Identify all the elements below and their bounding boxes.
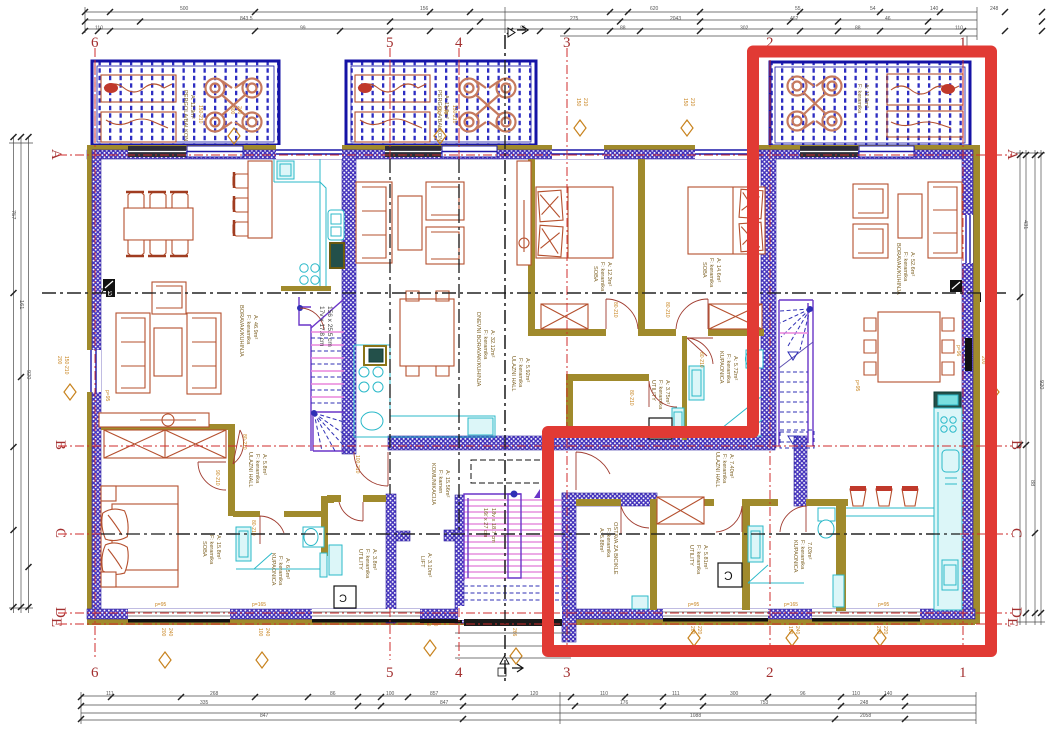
svg-text:UTILITY: UTILITY: [688, 545, 694, 566]
svg-text:200: 200: [160, 628, 166, 637]
svg-text:200: 200: [875, 626, 881, 635]
svg-text:300: 300: [730, 691, 739, 697]
svg-text:150-210: 150-210: [197, 105, 203, 124]
svg-text:F: keramika: F: keramika: [517, 358, 523, 388]
svg-text:PERGOLA/BALKON: PERGOLA/BALKON: [182, 90, 188, 141]
svg-text:C: C: [52, 528, 68, 538]
svg-text:110: 110: [600, 691, 608, 697]
svg-text:300: 300: [435, 106, 441, 115]
svg-text:111: 111: [106, 691, 114, 697]
svg-text:462: 462: [790, 16, 799, 22]
svg-text:F: keramika: F: keramika: [254, 454, 260, 484]
svg-text:335: 335: [200, 700, 209, 706]
svg-text:150-210: 150-210: [451, 105, 457, 124]
svg-text:F: keramika: F: keramika: [725, 354, 731, 384]
svg-text:F: keramika: F: keramika: [902, 252, 908, 282]
svg-text:200: 200: [56, 356, 62, 365]
svg-text:220: 220: [696, 626, 702, 635]
svg-text:266: 266: [511, 628, 517, 637]
svg-text:240: 240: [794, 626, 800, 635]
svg-text:A: 5.72m²: A: 5.72m²: [732, 356, 738, 380]
svg-text:KUPAONICA: KUPAONICA: [792, 540, 798, 573]
svg-text:240: 240: [264, 628, 270, 637]
svg-text:BORAVAK/KUHINJA: BORAVAK/KUHINJA: [895, 243, 901, 295]
svg-text:2058: 2058: [860, 713, 871, 719]
svg-text:220: 220: [882, 626, 888, 635]
svg-text:A: 5.92m²: A: 5.92m²: [524, 358, 530, 382]
svg-text:A: 3.75m²: A: 3.75m²: [664, 380, 670, 404]
svg-text:KUPAONICA: KUPAONICA: [270, 553, 276, 586]
svg-text:p=95: p=95: [878, 602, 889, 608]
svg-text:248: 248: [860, 700, 869, 706]
svg-text:100: 100: [386, 691, 395, 697]
svg-text:F: keramika: F: keramika: [657, 380, 663, 410]
svg-text:p=96: p=96: [955, 345, 961, 356]
svg-text:176: 176: [620, 700, 629, 706]
svg-text:4: 4: [455, 665, 463, 681]
svg-text:161: 161: [18, 300, 24, 309]
svg-text:80·210: 80·210: [612, 302, 618, 318]
svg-text:431: 431: [1022, 220, 1028, 229]
svg-text:PERGOLA/BALKON: PERGOLA/BALKON: [436, 90, 442, 141]
svg-text:2: 2: [766, 665, 774, 681]
svg-text:SOBA: SOBA: [592, 266, 598, 282]
svg-text:140: 140: [884, 691, 893, 697]
svg-text:920: 920: [1038, 380, 1044, 389]
svg-text:F: keramika: F: keramika: [856, 84, 862, 114]
svg-text:ULAZNI HALL: ULAZNI HALL: [247, 452, 253, 487]
svg-text:6: 6: [91, 665, 99, 681]
svg-text:80·210: 80·210: [698, 352, 704, 368]
svg-text:1: 1: [959, 665, 967, 681]
svg-text:KUPAONICA: KUPAONICA: [718, 351, 724, 384]
svg-text:A: 46.9m²: A: 46.9m²: [252, 315, 258, 339]
svg-text:120: 120: [530, 691, 539, 697]
svg-text:F: keramika: F: keramika: [599, 262, 605, 292]
svg-text:150: 150: [575, 98, 581, 107]
svg-text:757: 757: [10, 210, 16, 219]
svg-text:DNEVNI BORAVAK/KUHINJA: DNEVNI BORAVAK/KUHINJA: [475, 312, 481, 387]
svg-text:210: 210: [689, 98, 695, 107]
svg-text:KOMUNIKACIJA: KOMUNIKACIJA: [430, 463, 436, 505]
svg-text:88: 88: [1029, 480, 1035, 486]
svg-text:A: 7.40m²: A: 7.40m²: [728, 454, 734, 478]
svg-text:302: 302: [740, 26, 749, 32]
svg-text:A: 14.6m²: A: 14.6m²: [715, 258, 721, 282]
svg-text:300: 300: [229, 106, 235, 115]
svg-text:p=95: p=95: [688, 602, 699, 608]
svg-text:SOBA: SOBA: [201, 541, 207, 557]
svg-text:857: 857: [430, 691, 439, 697]
svg-text:110: 110: [852, 691, 860, 697]
svg-text:54: 54: [870, 6, 876, 12]
svg-text:B: B: [1008, 440, 1024, 450]
svg-text:150·210: 150·210: [63, 356, 69, 375]
svg-text:F: kamen: F: kamen: [437, 470, 443, 493]
svg-text:55: 55: [795, 6, 801, 12]
svg-text:E: E: [1004, 618, 1020, 627]
svg-text:80·210: 80·210: [628, 390, 634, 406]
svg-text:156 x 25.5 cm: 156 x 25.5 cm: [326, 306, 333, 347]
svg-text:A: 5.88m²: A: 5.88m²: [598, 528, 604, 552]
svg-text:D: D: [52, 607, 68, 618]
svg-text:150: 150: [682, 98, 688, 107]
svg-text:920: 920: [25, 370, 31, 379]
svg-text:LIFT: LIFT: [419, 556, 425, 568]
svg-text:90·210: 90·210: [214, 470, 220, 486]
svg-text:F: keramika: F: keramika: [482, 330, 488, 360]
svg-text:OSTAVA ZA BICIKLE: OSTAVA ZA BICIKLE: [612, 522, 618, 575]
svg-text:A: 3.10m²: A: 3.10m²: [426, 553, 432, 577]
svg-text:p=165: p=165: [784, 602, 798, 608]
svg-text:SOBA: SOBA: [701, 262, 707, 278]
svg-text:248: 248: [990, 6, 999, 12]
svg-text:843.5: 843.5: [240, 16, 253, 22]
svg-text:D: D: [1008, 607, 1024, 618]
svg-text:753: 753: [760, 700, 769, 706]
svg-text:80·210: 80·210: [241, 434, 247, 450]
svg-text:A: 5.81m²: A: 5.81m²: [702, 545, 708, 569]
svg-text:240: 240: [236, 106, 242, 115]
svg-text:3: 3: [563, 665, 571, 681]
svg-text:B: B: [52, 440, 68, 450]
svg-text:100: 100: [257, 628, 263, 637]
svg-text:F: keramika: F: keramika: [277, 556, 283, 586]
svg-text:88: 88: [620, 26, 626, 32]
svg-text:F: keramika: F: keramika: [208, 535, 214, 565]
svg-text:240: 240: [442, 106, 448, 115]
svg-text:17v x 17.8 cm: 17v x 17.8 cm: [318, 306, 325, 346]
svg-text:p=95: p=95: [104, 390, 110, 401]
svg-text:140: 140: [930, 6, 939, 12]
svg-text:275: 275: [570, 16, 579, 22]
svg-text:18v x 18.7 cm: 18v x 18.7 cm: [490, 508, 496, 543]
svg-text:p=165: p=165: [252, 602, 266, 608]
svg-text:268: 268: [210, 691, 219, 697]
svg-text:111: 111: [672, 691, 680, 697]
svg-text:110: 110: [955, 26, 963, 32]
svg-text:240: 240: [167, 628, 173, 637]
svg-text:ULAZNI HALL: ULAZNI HALL: [714, 452, 720, 487]
svg-text:99: 99: [300, 26, 306, 32]
svg-text:A: 12.3m²: A: 12.3m²: [606, 262, 612, 286]
svg-text:847: 847: [440, 700, 449, 706]
svg-text:620: 620: [650, 6, 659, 12]
svg-text:1088: 1088: [690, 713, 701, 719]
svg-text:2043: 2043: [670, 16, 681, 22]
svg-text:46: 46: [885, 16, 891, 22]
svg-text:BORAVAK/KUHINJA: BORAVAK/KUHINJA: [238, 305, 244, 357]
svg-text:88: 88: [855, 26, 861, 32]
svg-text:A: 3.8m²: A: 3.8m²: [371, 549, 377, 570]
svg-text:156: 156: [420, 6, 429, 12]
svg-text:Ɔ: Ɔ: [339, 593, 347, 605]
svg-text:5: 5: [386, 665, 394, 681]
svg-text:A: 5.8m²: A: 5.8m²: [261, 454, 267, 475]
svg-text:A: 6.5m²: A: 6.5m²: [284, 558, 290, 579]
svg-text:ULAZNI HALL: ULAZNI HALL: [510, 356, 516, 391]
svg-text:E: E: [48, 618, 64, 627]
svg-text:A: 15.8m²: A: 15.8m²: [215, 535, 221, 559]
svg-text:p=95: p=95: [854, 380, 860, 391]
svg-text:500: 500: [180, 6, 189, 12]
svg-text:F: keramika: F: keramika: [799, 540, 805, 570]
svg-text:A: A: [1004, 149, 1020, 160]
svg-text:96: 96: [800, 691, 806, 697]
svg-text:UTILITY: UTILITY: [357, 549, 363, 570]
svg-text:7.03m²: 7.03m²: [806, 542, 812, 560]
svg-text:A: 52.6m²: A: 52.6m²: [909, 252, 915, 276]
svg-text:200: 200: [689, 626, 695, 635]
svg-text:B: B: [108, 291, 113, 298]
svg-text:A: A: [48, 149, 64, 160]
svg-text:A: 11.9m²: A: 11.9m²: [189, 95, 195, 119]
svg-text:A: 15.56m²: A: 15.56m²: [444, 470, 450, 497]
svg-text:100: 100: [787, 626, 793, 635]
svg-text:110: 110: [95, 26, 103, 32]
svg-text:210: 210: [582, 98, 588, 107]
svg-text:F: keramika: F: keramika: [721, 454, 727, 484]
svg-text:F: keramika: F: keramika: [605, 528, 611, 558]
svg-text:F: keramika: F: keramika: [695, 545, 701, 575]
svg-text:80·210: 80·210: [664, 302, 670, 318]
svg-text:F: keramika: F: keramika: [364, 549, 370, 579]
svg-text:F: keramika: F: keramika: [245, 315, 251, 345]
svg-text:16ť x 27 cm: 16ť x 27 cm: [482, 508, 488, 538]
svg-text:A: 11.9m²: A: 11.9m²: [863, 84, 869, 108]
svg-text:847: 847: [260, 713, 269, 719]
svg-text:p=95: p=95: [155, 602, 166, 608]
svg-text:Ɔ: Ɔ: [724, 569, 733, 583]
svg-text:A: 32.12m²: A: 32.12m²: [489, 330, 495, 357]
svg-text:C: C: [1008, 528, 1024, 538]
svg-text:86: 86: [330, 691, 336, 697]
svg-text:F: keramika: F: keramika: [708, 258, 714, 288]
